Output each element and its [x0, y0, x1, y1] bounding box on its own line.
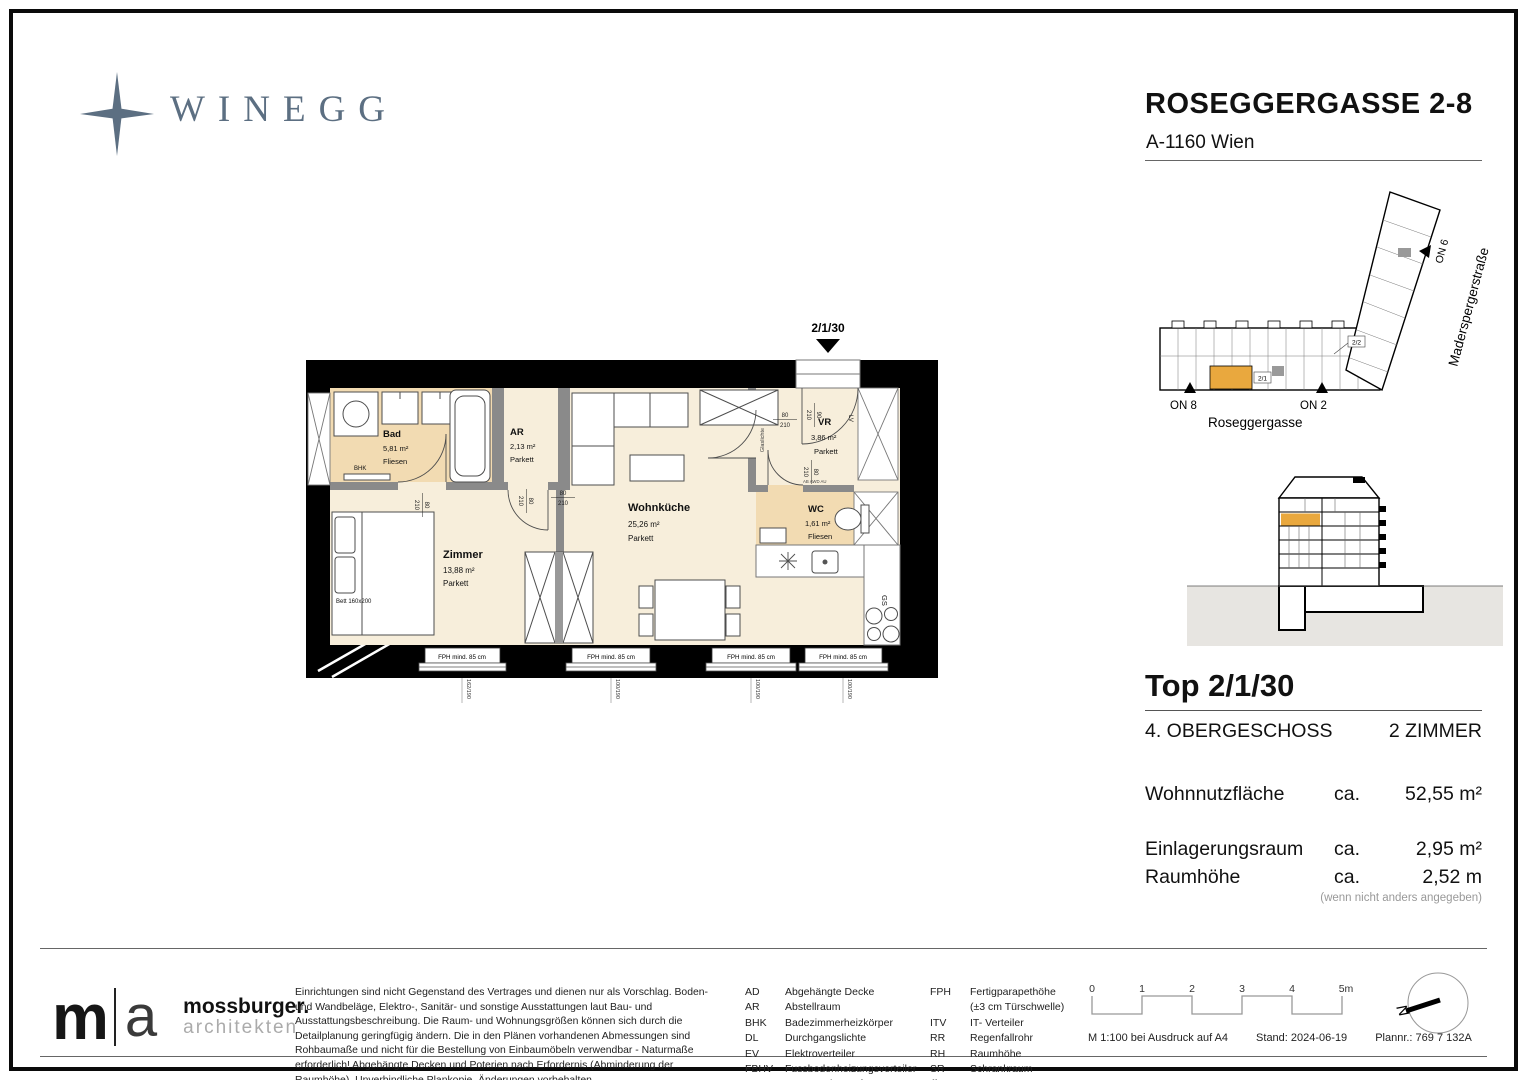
room-zimmer-area: 13,88 m²: [443, 566, 475, 575]
footer-top-divider: [40, 948, 1487, 949]
site-stairs-2: [1398, 248, 1411, 257]
room-ar-name: AR: [510, 427, 524, 438]
room-bad-area: 5,81 m²: [383, 444, 409, 453]
toilet: [835, 508, 861, 530]
metric-value: 2,52 m: [1386, 866, 1482, 889]
site-unit-label-1: 2/1: [1254, 372, 1271, 383]
legend-abbr: DL: [745, 1031, 785, 1046]
north-label: N: [1396, 1002, 1412, 1019]
metric-value: 52,55 m²: [1386, 783, 1482, 806]
room-wc-floor: Fliesen: [808, 532, 832, 541]
scale-tick: 0: [1089, 983, 1095, 995]
lv-label: LV: [847, 415, 853, 422]
brand-logo-text: WINEGG: [170, 88, 398, 131]
project-address: A-1160 Wien: [1146, 132, 1254, 154]
glaslichte-label: Glaslichte: [760, 428, 766, 452]
room-wohnkueche-area: 25,26 m²: [628, 520, 660, 529]
unit-floor-label: 4. OBERGESCHOSS: [1145, 720, 1332, 743]
room-wohnkueche-floor: Parkett: [628, 534, 654, 543]
entrance-door: [796, 360, 860, 388]
scale-tick: 2: [1189, 983, 1195, 995]
bhk-label: BHK: [354, 466, 366, 472]
section-balconies: [1379, 506, 1386, 568]
svg-text:80: 80: [527, 498, 533, 505]
legend-abbr: FPH: [930, 985, 970, 1000]
metric-row: Einlagerungsraum ca. 2,95 m²: [1145, 838, 1482, 861]
building-section: [1185, 468, 1505, 653]
wc-basin: [760, 528, 786, 543]
legend-abbr: SR: [930, 1062, 970, 1077]
floor-plan: 2/1/30: [298, 315, 940, 715]
svg-text:ON 6: ON 6: [1433, 238, 1451, 265]
scale-tick: 1: [1139, 983, 1145, 995]
legend-term: Schrankraum: [970, 1062, 1032, 1077]
scale-bar: 0 1 2 3 4 5m: [1088, 982, 1356, 1024]
legend-abbr: EV: [745, 1047, 785, 1062]
legend-term: Raumhöhe: [970, 1047, 1021, 1062]
dining-table: [655, 580, 725, 640]
room-bad-floor: Fliesen: [383, 457, 407, 466]
legend-column-1: ADAbgehängte Decke ARAbstellraum BHKBade…: [745, 985, 952, 1080]
svg-text:210: 210: [805, 410, 811, 421]
north-arrow: N: [1396, 966, 1476, 1044]
legend-term: (±3 cm Türschwelle): [970, 1000, 1064, 1015]
metric-row: Raumhöhe ca. 2,52 m: [1145, 866, 1482, 889]
print-scale: M 1:100 bei Ausdruck auf A4: [1088, 1032, 1228, 1044]
fph-label: FPH mind. 85 cm: [587, 654, 635, 661]
architect-name: mossburger.: [183, 995, 309, 1019]
architect-logo: m a mossburger. architekten: [52, 982, 309, 1052]
room-ar-area: 2,13 m²: [510, 442, 536, 451]
legend-abbr: AD: [745, 985, 785, 1000]
svg-text:80: 80: [782, 413, 789, 419]
legend-abbr: FBHV: [745, 1062, 785, 1077]
architect-logo-bar: [114, 988, 116, 1046]
fph-label: FPH mind. 85 cm: [438, 654, 486, 661]
winegg-star-icon: [78, 70, 156, 158]
section-highlighted-floor: [1281, 514, 1320, 526]
svg-text:80: 80: [812, 469, 818, 476]
legend-term: Fussbodenheizungsverteiler: [785, 1062, 916, 1077]
site-highlighted-unit: [1210, 366, 1252, 389]
room-vr-name: VR: [818, 417, 831, 428]
site-stairs: [1272, 366, 1284, 376]
metric-label: Wohnnutzfläche: [1145, 783, 1334, 806]
disclaimer-text: Einrichtungen sind nicht Gegenstand des …: [295, 986, 727, 1080]
fph-label: FPH mind. 85 cm: [819, 654, 867, 661]
legend-term: Abgehängte Decke: [785, 985, 874, 1000]
unit-rooms-label: 2 ZIMMER: [1389, 720, 1482, 743]
svg-text:2/1: 2/1: [1258, 376, 1267, 383]
project-title: ROSEGGERGASSE 2-8: [1145, 88, 1473, 121]
room-zimmer-name: Zimmer: [443, 549, 483, 561]
architect-subtitle: architekten: [183, 1017, 309, 1039]
print-date: Stand: 2024-06-19: [1256, 1032, 1347, 1044]
room-zimmer-floor: Parkett: [443, 579, 469, 588]
legend-abbr: BHK: [745, 1016, 785, 1031]
bathroom-radiator: [344, 474, 390, 480]
metric-approx: ca.: [1334, 866, 1386, 889]
street-label-roseggergasse: Roseggergasse: [1208, 415, 1303, 430]
coffee-table: [630, 455, 684, 481]
svg-text:210: 210: [517, 496, 523, 507]
legend-term: Fertigparapethöhe: [970, 985, 1056, 1000]
room-ar-floor: Parkett: [510, 455, 535, 464]
room-wc-area: 1,61 m²: [805, 519, 831, 528]
window-dim: 100/190: [614, 679, 620, 699]
street-label-maderspergerstrasse: Maderspergerstraße: [1446, 246, 1492, 368]
legend-column-2: FPHFertigparapethöhe (±3 cm Türschwelle)…: [930, 985, 1064, 1080]
window-dim: 162/190: [465, 679, 471, 699]
legend-term: Durchgangslichte: [785, 1031, 866, 1046]
svg-text:210: 210: [780, 423, 791, 429]
section-basement: [1305, 586, 1423, 612]
metric-value: 2,95 m²: [1386, 838, 1482, 861]
room-wc-name: WC: [808, 504, 824, 515]
legend-abbr: RR: [930, 1031, 970, 1046]
info-divider: [1145, 710, 1482, 711]
legend-term: Abstellraum: [785, 1000, 840, 1015]
legend-term: Badezimmerheizkörper: [785, 1016, 893, 1031]
window-dim: 100/190: [846, 679, 852, 699]
legend-term: Elektroverteiler: [785, 1047, 855, 1062]
legend-term: IT- Verteiler: [970, 1016, 1024, 1031]
metric-approx: ca.: [1334, 783, 1386, 806]
section-body: [1279, 498, 1379, 586]
shaft-labels: AB AWD AU: [803, 479, 826, 484]
window-dim: 100/190: [754, 679, 760, 699]
svg-text:80: 80: [423, 502, 429, 509]
bed-size-label: Bett 160x200: [336, 599, 372, 605]
legend-abbr: AR: [745, 1000, 785, 1015]
entrance-arrow-icon: [816, 339, 840, 353]
plan-sheet: WINEGG ROSEGGERGASSE 2-8 A-1160 Wien 2/1…: [0, 0, 1527, 1080]
metric-approx: ca.: [1334, 838, 1386, 861]
svg-text:2/2: 2/2: [1352, 340, 1361, 347]
metric-label: Raumhöhe: [1145, 866, 1334, 889]
room-bad-name: Bad: [383, 429, 401, 440]
dishwasher-label: GS: [880, 595, 889, 606]
svg-text:80: 80: [560, 491, 567, 497]
room-vr-floor: Parkett: [814, 447, 839, 456]
legend-term: Regenfallrohr: [970, 1031, 1033, 1046]
scale-tick: 3: [1239, 983, 1245, 995]
header-divider: [1145, 160, 1482, 161]
room-wohnkueche-name: Wohnküche: [628, 502, 690, 514]
architect-logo-a: a: [125, 987, 157, 1047]
unit-title: Top 2/1/30: [1145, 668, 1482, 704]
site-plan: 2/1 2/2 ON 8 ON 2 ON 6 Roseggergasse Mad…: [1148, 188, 1508, 440]
metric-row: Wohnnutzfläche ca. 52,55 m²: [1145, 783, 1482, 806]
scale-tick: 4: [1289, 983, 1295, 995]
legend-abbr: ITV: [930, 1016, 970, 1031]
unit-entrance-marker: 2/1/30: [811, 321, 845, 353]
svg-text:210: 210: [413, 500, 419, 511]
legend-abbr: RH: [930, 1047, 970, 1062]
scale-tick: 5m: [1339, 983, 1354, 995]
svg-text:210: 210: [558, 501, 569, 507]
architect-logo-m: m: [52, 987, 107, 1047]
kitchen-sink-icon: [779, 552, 797, 570]
unit-marker-label: 2/1/30: [811, 321, 845, 335]
room-height-note: (wenn nicht anders angegeben): [1145, 892, 1482, 904]
room-vr-area: 3,86 m²: [811, 433, 837, 442]
metric-label: Einlagerungsraum: [1145, 838, 1334, 861]
svg-text:ON 2: ON 2: [1300, 400, 1327, 412]
unit-info-panel: Top 2/1/30 4. OBERGESCHOSS 2 ZIMMER Wohn…: [1145, 668, 1482, 904]
svg-text:210: 210: [802, 467, 808, 478]
site-building-diagonal-wing: [1346, 192, 1440, 390]
legend-abbr: [930, 1000, 970, 1015]
svg-text:ON 8: ON 8: [1170, 400, 1197, 412]
fph-label: FPH mind. 85 cm: [727, 654, 775, 661]
